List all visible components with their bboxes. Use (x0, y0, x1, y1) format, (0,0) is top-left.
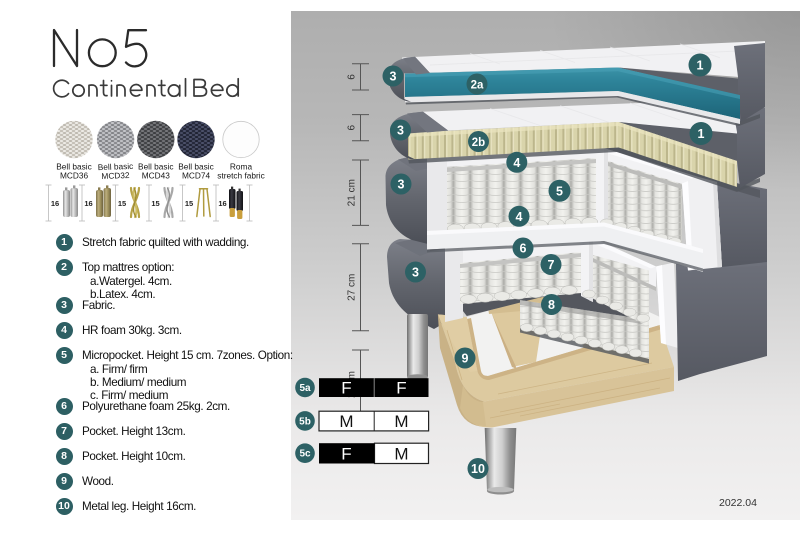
svg-text:21 cm: 21 cm (347, 179, 358, 206)
svg-text:F: F (341, 379, 351, 398)
svg-text:F: F (396, 379, 406, 398)
svg-text:2022.04: 2022.04 (719, 497, 757, 509)
svg-text:6: 6 (347, 74, 358, 80)
svg-text:1: 1 (698, 127, 705, 141)
svg-text:8: 8 (548, 298, 555, 312)
svg-text:4: 4 (513, 156, 520, 170)
svg-text:6: 6 (520, 242, 527, 256)
svg-text:9: 9 (462, 352, 469, 366)
svg-text:3: 3 (412, 266, 419, 280)
svg-text:5c: 5c (299, 449, 311, 460)
svg-text:2b: 2b (472, 137, 485, 149)
svg-text:7: 7 (548, 258, 555, 272)
svg-text:27 cm: 27 cm (347, 274, 358, 301)
svg-text:3: 3 (398, 178, 405, 192)
svg-text:5: 5 (556, 184, 563, 198)
svg-text:5b: 5b (299, 416, 311, 427)
svg-text:3: 3 (397, 124, 404, 138)
svg-text:M: M (394, 445, 408, 464)
svg-text:2a: 2a (471, 80, 484, 92)
svg-text:F: F (341, 445, 351, 464)
svg-text:M: M (339, 412, 353, 431)
svg-text:10: 10 (471, 462, 485, 476)
svg-text:6: 6 (347, 124, 358, 130)
svg-text:3: 3 (390, 70, 397, 84)
svg-text:5a: 5a (299, 383, 311, 394)
svg-text:M: M (394, 412, 408, 431)
svg-text:4: 4 (516, 210, 523, 224)
svg-text:1: 1 (697, 59, 704, 73)
